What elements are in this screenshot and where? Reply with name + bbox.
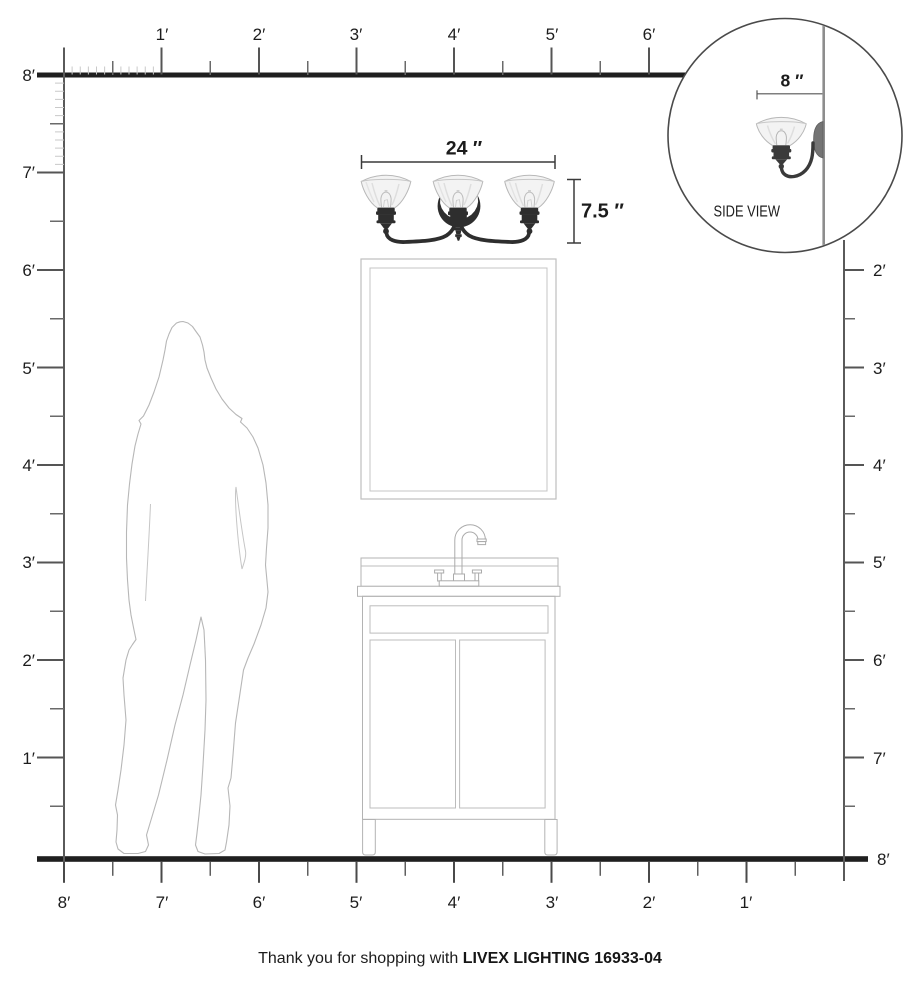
svg-text:5′: 5′ [873, 553, 886, 572]
svg-text:1′: 1′ [156, 25, 169, 44]
svg-text:6′: 6′ [22, 261, 35, 280]
svg-text:8′: 8′ [877, 850, 890, 869]
svg-text:Thank you for shopping with LI: Thank you for shopping with LIVEX LIGHTI… [258, 950, 662, 967]
svg-text:1′: 1′ [22, 749, 35, 768]
svg-text:5′: 5′ [22, 359, 35, 378]
svg-text:3′: 3′ [22, 553, 35, 572]
svg-text:4′: 4′ [448, 893, 461, 912]
svg-text:4′: 4′ [22, 456, 35, 475]
svg-text:SIDE VIEW: SIDE VIEW [714, 204, 781, 221]
svg-text:4′: 4′ [873, 456, 886, 475]
svg-text:2′: 2′ [873, 261, 886, 280]
svg-text:4′: 4′ [448, 25, 461, 44]
svg-text:3′: 3′ [546, 893, 559, 912]
svg-text:2′: 2′ [22, 651, 35, 670]
svg-text:8′: 8′ [22, 66, 35, 85]
svg-text:24 ″: 24 ″ [446, 138, 482, 160]
svg-text:3′: 3′ [873, 359, 886, 378]
svg-text:8 ″: 8 ″ [781, 71, 805, 91]
svg-text:5′: 5′ [546, 25, 559, 44]
svg-text:6′: 6′ [253, 893, 266, 912]
svg-text:2′: 2′ [643, 893, 656, 912]
svg-text:7′: 7′ [156, 893, 169, 912]
svg-text:7′: 7′ [22, 163, 35, 182]
svg-text:5′: 5′ [350, 893, 363, 912]
svg-text:8′: 8′ [58, 893, 71, 912]
svg-text:7.5 ″: 7.5 ″ [581, 201, 624, 223]
svg-text:1′: 1′ [740, 893, 753, 912]
svg-text:6′: 6′ [643, 25, 656, 44]
svg-text:7′: 7′ [873, 749, 886, 768]
svg-text:3′: 3′ [350, 25, 363, 44]
svg-text:2′: 2′ [253, 25, 266, 44]
svg-text:6′: 6′ [873, 651, 886, 670]
